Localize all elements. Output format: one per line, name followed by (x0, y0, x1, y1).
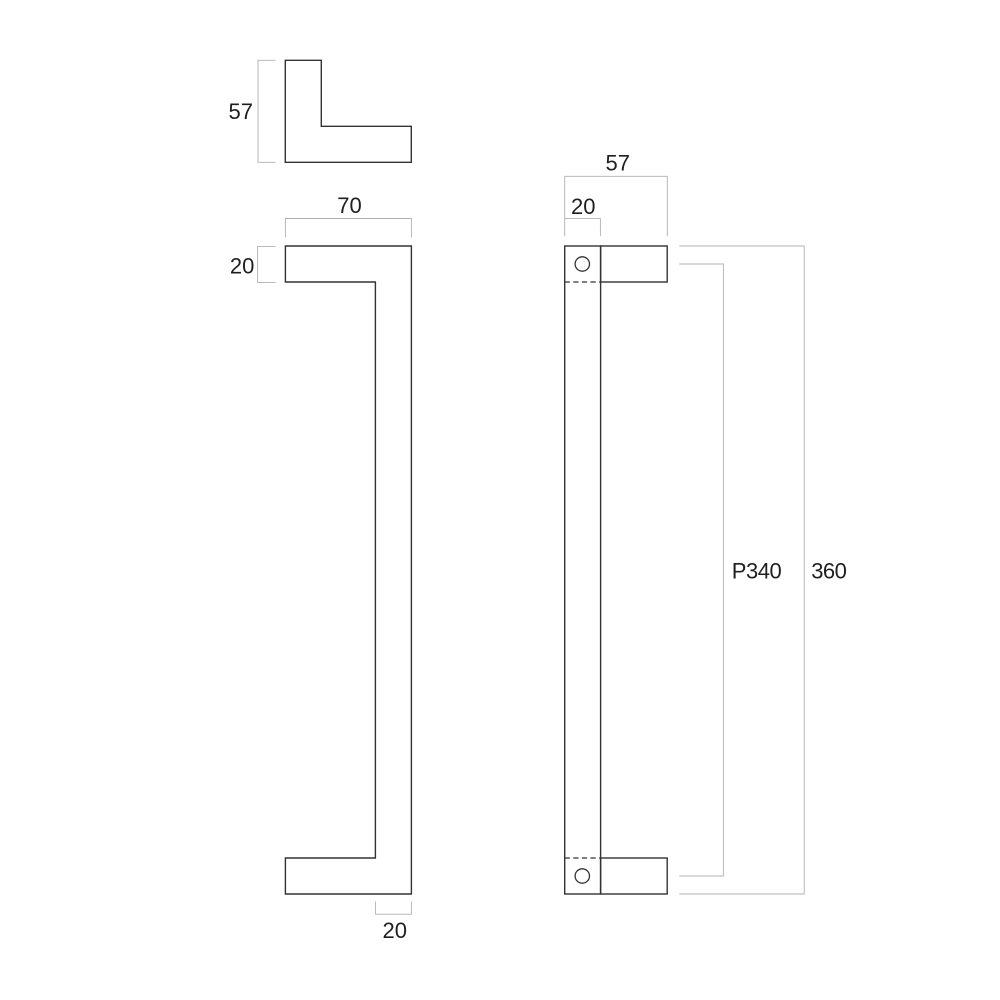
svg-text:P340: P340 (732, 558, 782, 583)
svg-text:20: 20 (382, 918, 406, 943)
svg-text:20: 20 (230, 253, 254, 278)
svg-text:57: 57 (606, 151, 630, 176)
svg-text:57: 57 (229, 99, 253, 124)
svg-text:360: 360 (811, 558, 846, 583)
svg-text:20: 20 (571, 194, 595, 219)
svg-text:70: 70 (337, 193, 361, 218)
